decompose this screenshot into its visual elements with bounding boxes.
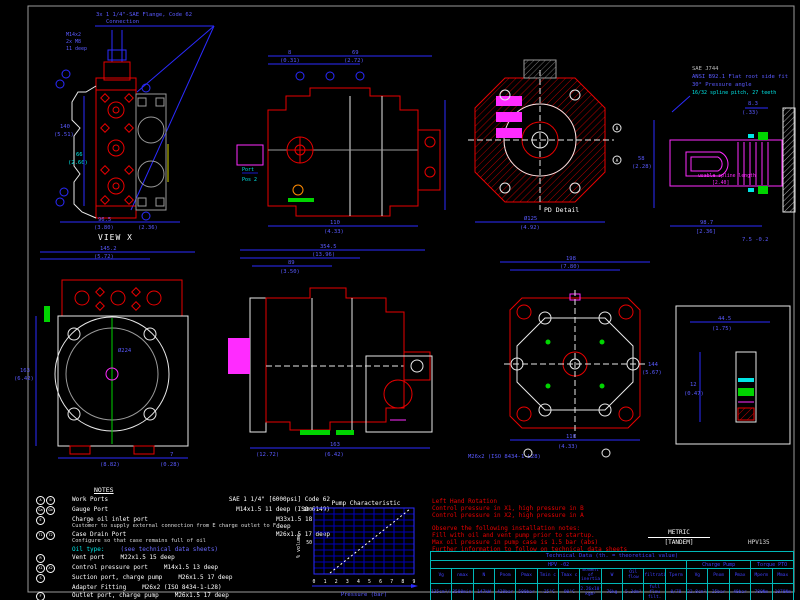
tech-table-title: Technical Data (th. = theoretical value): [431, 552, 794, 561]
technical-data-table: Technical Data (th. = theoretical value)…: [430, 551, 794, 600]
dim-label: (5.51): [54, 132, 74, 138]
view-x-caption: VIEW X: [98, 233, 133, 242]
note-label: Charge oil inlet portCustomer to supply …: [72, 516, 276, 530]
tech-table-header: moment of inertia: [580, 569, 601, 584]
dim-label: (13.96): [312, 252, 335, 258]
chart-xtick: 1: [324, 579, 327, 585]
port-circle: R: [36, 554, 45, 563]
chart-ytick: 100: [303, 507, 312, 513]
thread-note: 2x M8: [66, 39, 81, 45]
seal-strip: [44, 306, 50, 322]
seal: [738, 388, 754, 396]
flange-note-2: Connection: [106, 19, 139, 25]
note-label-text: Control pressure port: [72, 564, 148, 571]
dim-label: 8.3: [748, 101, 758, 107]
spline-note: 30° Pressure angle: [692, 82, 752, 88]
chart-ylabel: % volume: [296, 534, 302, 558]
note-label: Outlet port, charge pump: [72, 592, 159, 599]
spline-length-note: usable spline length: [698, 173, 756, 179]
dim-label: (7.80): [560, 264, 580, 270]
dim-label: Ø125: [524, 215, 537, 222]
install-note-line: Max oil pressure in pump case is 1.5 bar…: [432, 539, 646, 546]
dim-label: 110: [566, 434, 576, 440]
dim-label: 12: [690, 382, 697, 388]
tech-table-value: 90°C: [559, 583, 580, 600]
spline-standard-note: SAE J744: [692, 66, 719, 72]
pump-characteristic-chart: Pump Characteristic 012345678910050 Pres…: [292, 496, 432, 600]
note-label-text: Charge oil inlet port: [72, 516, 276, 523]
tech-table-value: 135cm³/r: [431, 583, 452, 600]
install-note-line: Control pressure in X1, high pressure in…: [432, 505, 646, 512]
note-row: RVent portM22x1.5 15 deep: [36, 554, 330, 563]
startup-notes: Observe the following installation notes…: [432, 525, 646, 553]
dim-label: (2.36): [138, 225, 158, 231]
dim-label: 110: [330, 220, 340, 226]
note-row: FOutlet port, charge pumpM26x1.5 17 deep: [36, 592, 330, 600]
thread-note: M14x2: [66, 32, 81, 38]
port-circle: Gb: [46, 506, 55, 515]
dim-label: (6.42): [14, 376, 34, 382]
seal-strip: [300, 430, 330, 435]
note-row: X1X2Control pressure portM14x1.5 13 deep: [36, 564, 330, 573]
note-label: Oil type:: [72, 546, 105, 553]
dim-label: (1.75): [712, 326, 732, 332]
port-circle: Ga: [36, 506, 45, 515]
dim-label: 163: [330, 442, 340, 448]
chart-xlabel: Pressure (bar): [341, 592, 387, 598]
tech-table-value: 0/70: [665, 583, 686, 600]
dim-label: 58: [638, 156, 645, 162]
port-letter: B: [616, 126, 619, 132]
note-spec: M26x1.5 17 deep: [175, 592, 229, 599]
install-note-line: Left Hand Rotation: [432, 498, 646, 505]
tech-table-value: 2.26x10⁻² kgm²: [580, 583, 601, 600]
note-label: Gauge Port: [72, 506, 108, 513]
rear-view: 198 (7.80) 110 (4.33) 144 (5.67) M26x2 (…: [468, 256, 662, 460]
detail-box: [366, 356, 432, 432]
variant-label: [TANDEM]: [648, 539, 710, 546]
dim-label: (2.28): [632, 164, 652, 170]
aux-detail-view: 44.5 (1.75) 12 (0.47): [676, 306, 790, 444]
valve-block: [524, 60, 556, 78]
tech-table-value: 22.8cm³/r: [687, 583, 708, 600]
tech-table-value: 780Nm: [751, 583, 772, 600]
port-circle: X1: [36, 564, 45, 573]
tech-table-header: W: [601, 569, 622, 584]
note-label: Work Ports: [72, 496, 108, 503]
port-letter: A: [616, 158, 619, 164]
note-label: Case Drain PortConfigure so that case re…: [72, 531, 206, 545]
dim-label: [2.36]: [696, 229, 716, 235]
tech-table-header: Vg: [431, 569, 452, 584]
notes-rows: ABWork PortsSAE 1 1/4" [6000psi] Code 62…: [36, 496, 330, 600]
note-label-text: Gauge Port: [72, 506, 108, 513]
dim-label: 7: [170, 452, 173, 458]
note-row: SSuction port, charge pumpM26x1.5 17 dee…: [36, 574, 330, 583]
note-label-text: Outlet port, charge pump: [72, 592, 159, 599]
section-view: B A PD Detail Ø125 (4.92): [468, 60, 621, 231]
leader-line: [131, 26, 214, 210]
note-label: Vent port: [72, 554, 105, 561]
note-label: Control pressure port: [72, 564, 148, 571]
dim-label: (5.67): [642, 370, 662, 376]
top-cap: [104, 62, 130, 80]
note-ports: GaGb: [36, 506, 72, 515]
dim-label: 98.7: [700, 220, 713, 226]
tech-table-group: Torque PTO: [751, 561, 794, 569]
install-note-line: Fill with oil and vent pump prior to sta…: [432, 532, 646, 539]
note-row: ABWork PortsSAE 1 1/4" [6000psi] Code 62: [36, 496, 330, 505]
pd-detail-caption: PD Detail: [544, 206, 579, 214]
tech-table-header: Pnom: [708, 569, 729, 584]
chart-xtick: 6: [379, 579, 382, 585]
tech-table-header: Pnom: [495, 569, 516, 584]
note-ports: AB: [36, 496, 72, 505]
chart-title: Pump Characteristic: [332, 500, 401, 507]
note-ports: F: [36, 592, 72, 600]
rotation-notes: Left Hand RotationControl pressure in X1…: [432, 498, 646, 519]
units-block: METRIC [TANDEM]: [648, 529, 710, 546]
port-circle: F: [36, 592, 45, 600]
dim-label: (3.50): [280, 269, 300, 275]
note-label-text: Oil type:: [72, 546, 105, 553]
retaining-ring: [758, 186, 768, 194]
chart-xtick: 5: [368, 579, 371, 585]
note-ports: S: [36, 574, 72, 583]
dim-label: 96.5: [98, 217, 111, 223]
dim-label: Ø224: [118, 347, 132, 354]
front-view: 8 (0.31) 69 (2.72) Port Pos 2 110 (4.33): [237, 50, 445, 235]
view-x: 3x 1 1/4"-SAE Flange, Code 62 Connection…: [54, 12, 214, 242]
characteristic-line: [330, 509, 410, 573]
port-circle: T1: [36, 531, 45, 540]
chart-xtick: 9: [412, 579, 415, 585]
notes-title: NOTES: [94, 487, 114, 494]
chart-xtick: 2: [335, 579, 338, 585]
tech-table-value: 5.3dm³: [623, 583, 644, 600]
tech-table-header: Mperm: [751, 569, 772, 584]
tech-table-header: Oil flow: [623, 569, 644, 584]
housing-hatch: [783, 108, 795, 212]
dim-label: 8: [288, 50, 291, 56]
servo-piston: [496, 112, 522, 122]
dim-label: 140: [60, 124, 70, 130]
spline-length-dim: [2.40]: [712, 180, 729, 186]
dim-label: 144: [648, 362, 659, 368]
note-row: ECharge oil inlet portCustomer to supply…: [36, 516, 330, 530]
detail-frame: [676, 306, 790, 444]
tech-table-header: Tmax c: [559, 569, 580, 584]
note-ports: E: [36, 516, 72, 525]
note-label-text: Adapter Fitting: [72, 584, 126, 591]
note-spec: M26x1.5 17 deep: [178, 574, 232, 581]
note-spec: M26x2 (ISO 8434-1-L28): [142, 584, 221, 591]
tech-table-value: 25bar: [708, 583, 729, 600]
chart-xtick: 0: [313, 579, 316, 585]
note-label: Suction port, charge pump: [72, 574, 162, 581]
note-label: Adapter Fitting: [72, 584, 126, 591]
installation-notes: Left Hand RotationControl pressure in X1…: [432, 498, 646, 553]
tech-table-value: -25°C: [537, 583, 558, 600]
chart-xtick: 7: [390, 579, 393, 585]
servo-piston: [496, 128, 522, 138]
tech-table-header: Tmin c: [537, 569, 558, 584]
tech-table-value: 420bar: [495, 583, 516, 600]
dim-label: (0.47): [684, 391, 704, 397]
note-row: Oil type:(see technical data sheets): [36, 546, 330, 553]
port-circle: A: [36, 496, 45, 505]
dim-label: (4.33): [558, 444, 578, 450]
dim-label: 145.2: [100, 246, 117, 252]
install-note-line: Observe the following installation notes…: [432, 525, 646, 532]
tech-table-header: Mmax: [772, 569, 794, 584]
tech-table-header: filtration: [644, 569, 665, 584]
technical-data-block: Technical Data (th. = theoretical value)…: [430, 551, 794, 600]
spline-note: 16/32 spline pitch, 27 teeth: [692, 90, 776, 96]
dim-label: (4.33): [324, 229, 344, 235]
tech-table-value: full flow filt.: [644, 583, 665, 600]
note-spec: M22x1.5 15 deep: [121, 554, 175, 561]
tech-table-header: nmax: [452, 569, 473, 584]
seal-strip: [288, 198, 314, 202]
dim-label: 66: [76, 152, 83, 158]
tech-table-header: N: [473, 569, 494, 584]
chart-xtick: 8: [401, 579, 404, 585]
dim-label: (2.72): [344, 58, 364, 64]
dim-label: (0.31): [280, 58, 300, 64]
flange-plate: [250, 298, 266, 432]
tech-table-header: Tperm: [665, 569, 686, 584]
note-ports: X1X2: [36, 564, 72, 573]
note-spec: (see technical data sheets): [121, 546, 219, 553]
spline-note: ANSI B92.1 Flat root side fit: [692, 74, 788, 80]
port-circle: B: [46, 496, 55, 505]
tech-table-value: 500bar: [516, 583, 537, 600]
dim-label: (6.42): [324, 452, 344, 458]
tech-table-value: 40bar: [729, 583, 750, 600]
tech-table-header: Pmax: [516, 569, 537, 584]
chart-xtick: 3: [346, 579, 349, 585]
tech-table-value: 147kW: [473, 583, 494, 600]
note-row: Adapter FittingM26x2 (ISO 8434-1-L28): [36, 584, 330, 591]
note-ports: T1T2: [36, 531, 72, 540]
note-label-text: Case Drain Port: [72, 531, 206, 538]
shaft-body: [670, 140, 782, 186]
install-note-line: Control pressure in X2, high pressure in…: [432, 512, 646, 519]
tech-table-value: 1070Nm: [772, 583, 794, 600]
note-label-text: Vent port: [72, 554, 105, 561]
tech-table-group: HPV -02: [431, 561, 687, 569]
dim-label: 163: [20, 368, 30, 374]
note-label-text: Work Ports: [72, 496, 108, 503]
tech-table-header: Pmax: [729, 569, 750, 584]
dim-label: (5.72): [94, 254, 114, 260]
cad-drawing-sheet: 3x 1 1/4"-SAE Flange, Code 62 Connection…: [0, 0, 800, 600]
shaft-end-detail: SAE J744 ANSI B92.1 Flat root side fit 3…: [632, 66, 795, 243]
note-row: T1T2Case Drain PortConfigure so that cas…: [36, 531, 330, 545]
dim-label: (.33): [742, 110, 759, 116]
note-ports: R: [36, 554, 72, 563]
chart-ticks: 012345678910050: [303, 507, 415, 585]
port-face: [62, 280, 182, 316]
plug: [293, 185, 303, 195]
side-view: 354.5 (13.96) 89 (3.50) 163 (6.42) (12.7…: [228, 244, 432, 458]
dim-label: 354.5: [320, 244, 337, 250]
port-highlight: [237, 145, 263, 165]
dim-label: 69: [352, 50, 359, 56]
chart-grid: [314, 508, 414, 574]
dim-label: (4.92): [520, 225, 540, 231]
thread-note: 11 deep: [66, 46, 87, 52]
suction-port-highlight: [228, 338, 250, 374]
flange-note: 3x 1 1/4"-SAE Flange, Code 62: [96, 12, 192, 18]
dim-label: 198: [566, 256, 576, 262]
leader-line: [137, 26, 214, 92]
pos-label: Pos 2: [242, 177, 257, 183]
units-label: METRIC: [648, 529, 710, 538]
retaining-ring: [758, 132, 768, 140]
port-circle: X2: [46, 564, 55, 573]
tech-table-header: Vg: [687, 569, 708, 584]
chart-xtick: 4: [357, 579, 360, 585]
tech-table-value: 3500min⁻¹: [452, 583, 473, 600]
model-code: HPV135: [748, 539, 770, 546]
note-spec: M14x1.5 13 deep: [164, 564, 218, 571]
notes-block: NOTES ABWork PortsSAE 1 1/4" [6000psi] C…: [36, 487, 330, 600]
flange-block: [136, 94, 166, 210]
note-sub-text: Customer to supply external connection f…: [72, 523, 276, 530]
port-circle: S: [36, 574, 45, 583]
note-sub-text: Configure so that case remains full of o…: [72, 538, 206, 545]
dim-label: (3.80): [94, 225, 114, 231]
dim-label: 7.5 -0.2: [742, 237, 769, 243]
dim-label: 89: [288, 260, 295, 266]
dim-label: (2.60): [68, 160, 88, 166]
flange-view: 145.2 (5.72) 163 (6.42) Ø224 (8.82) 7 (0…: [14, 246, 195, 468]
port-label: Port: [242, 167, 254, 173]
dim-label: (0.28): [160, 462, 180, 468]
dim-label: (8.82): [100, 462, 120, 468]
dim-label: 44.5: [718, 316, 731, 322]
dim-label: (12.72): [256, 452, 279, 458]
chart-ytick: 50: [306, 540, 312, 546]
pump-body-outline: [268, 88, 418, 216]
pump-side-outline: [266, 288, 404, 430]
tech-table-value: 76kg: [601, 583, 622, 600]
note-label-text: Suction port, charge pump: [72, 574, 162, 581]
port-circle: E: [36, 516, 45, 525]
port-circle: T2: [46, 531, 55, 540]
note-row: GaGbGauge PortM14x1.5 11 deep (ISO 6149): [36, 506, 330, 515]
tech-table-group: Charge Pump: [687, 561, 751, 569]
